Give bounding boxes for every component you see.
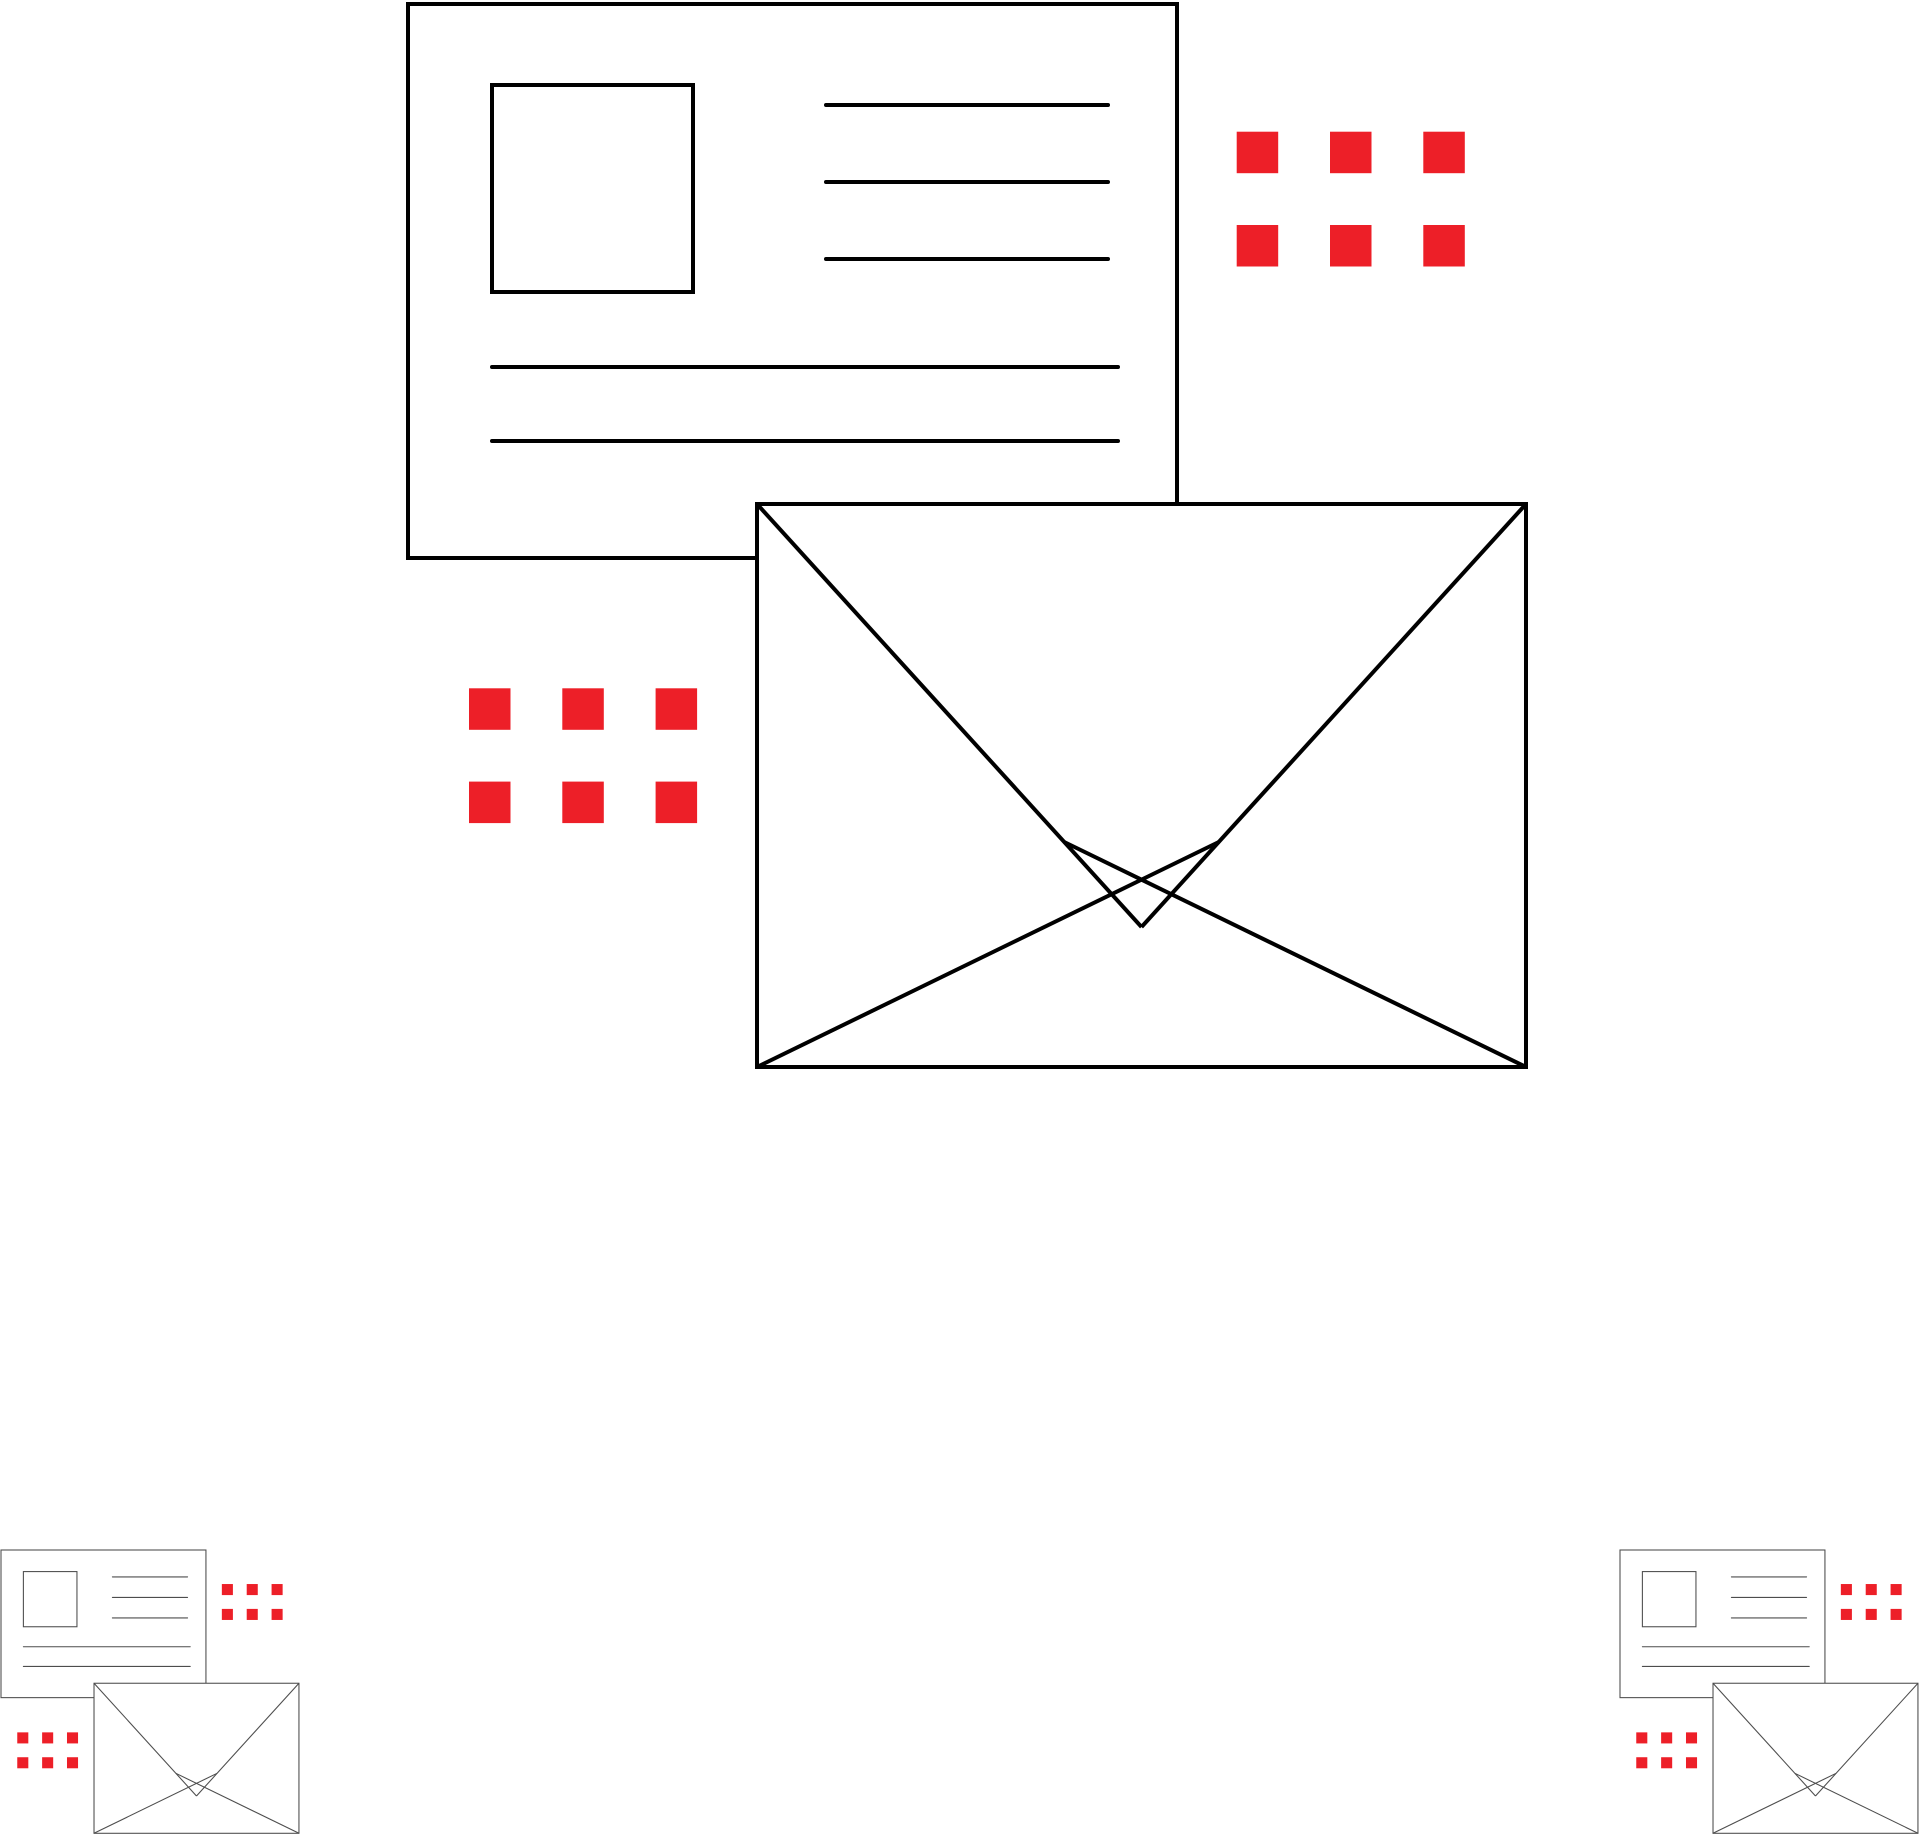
red-dot xyxy=(656,688,698,730)
postcard-outline xyxy=(1,1550,206,1698)
envelope-icon xyxy=(757,504,1526,1067)
illustration-canvas xyxy=(0,0,1920,1836)
dots-grid-top-right xyxy=(222,1584,283,1620)
red-dot xyxy=(656,782,698,824)
red-dot xyxy=(42,1732,53,1743)
postcard-icon xyxy=(1,1550,206,1698)
dots-grid-mid-left xyxy=(1636,1732,1697,1768)
red-dot xyxy=(1330,132,1372,174)
red-dot xyxy=(1661,1732,1672,1743)
postcard-icon xyxy=(408,4,1177,558)
red-dot xyxy=(67,1757,78,1768)
red-dot xyxy=(17,1732,28,1743)
red-dot xyxy=(469,688,511,730)
red-dot xyxy=(562,688,604,730)
red-dot xyxy=(1866,1609,1877,1620)
red-dot xyxy=(1423,225,1465,267)
red-dot xyxy=(272,1584,283,1595)
red-dot xyxy=(469,782,511,824)
red-dot xyxy=(562,782,604,824)
dots-grid-top-right xyxy=(1841,1584,1902,1620)
red-dot xyxy=(222,1609,233,1620)
mailing-icon-small-right xyxy=(1620,1550,1918,1833)
red-dot xyxy=(67,1732,78,1743)
red-dot xyxy=(1423,132,1465,174)
red-dot xyxy=(222,1584,233,1595)
dots-grid-top-right xyxy=(1237,132,1465,267)
red-dot xyxy=(247,1609,258,1620)
red-dot xyxy=(1891,1609,1902,1620)
red-dot xyxy=(1636,1732,1647,1743)
red-dot xyxy=(247,1584,258,1595)
red-dot xyxy=(1237,132,1279,174)
red-dot xyxy=(272,1609,283,1620)
red-dot xyxy=(42,1757,53,1768)
red-dot xyxy=(1841,1609,1852,1620)
red-dot xyxy=(1891,1584,1902,1595)
red-dot xyxy=(1661,1757,1672,1768)
red-dot xyxy=(1866,1584,1877,1595)
envelope-outline xyxy=(1713,1683,1918,1833)
postcard-icon xyxy=(1620,1550,1825,1698)
red-dot xyxy=(1237,225,1279,267)
dots-grid-mid-left xyxy=(469,688,697,823)
envelope-icon xyxy=(1713,1683,1918,1833)
postcard-outline xyxy=(408,4,1177,558)
postcard-outline xyxy=(1620,1550,1825,1698)
red-dot xyxy=(1636,1757,1647,1768)
mailing-icon-small-left xyxy=(1,1550,299,1833)
mailing-illustration xyxy=(0,0,1920,1836)
red-dot xyxy=(1330,225,1372,267)
red-dot xyxy=(1841,1584,1852,1595)
red-dot xyxy=(1686,1757,1697,1768)
mailing-icon-large xyxy=(408,4,1526,1067)
red-dot xyxy=(1686,1732,1697,1743)
dots-grid-mid-left xyxy=(17,1732,78,1768)
envelope-icon xyxy=(94,1683,299,1833)
envelope-outline xyxy=(757,504,1526,1067)
envelope-outline xyxy=(94,1683,299,1833)
red-dot xyxy=(17,1757,28,1768)
